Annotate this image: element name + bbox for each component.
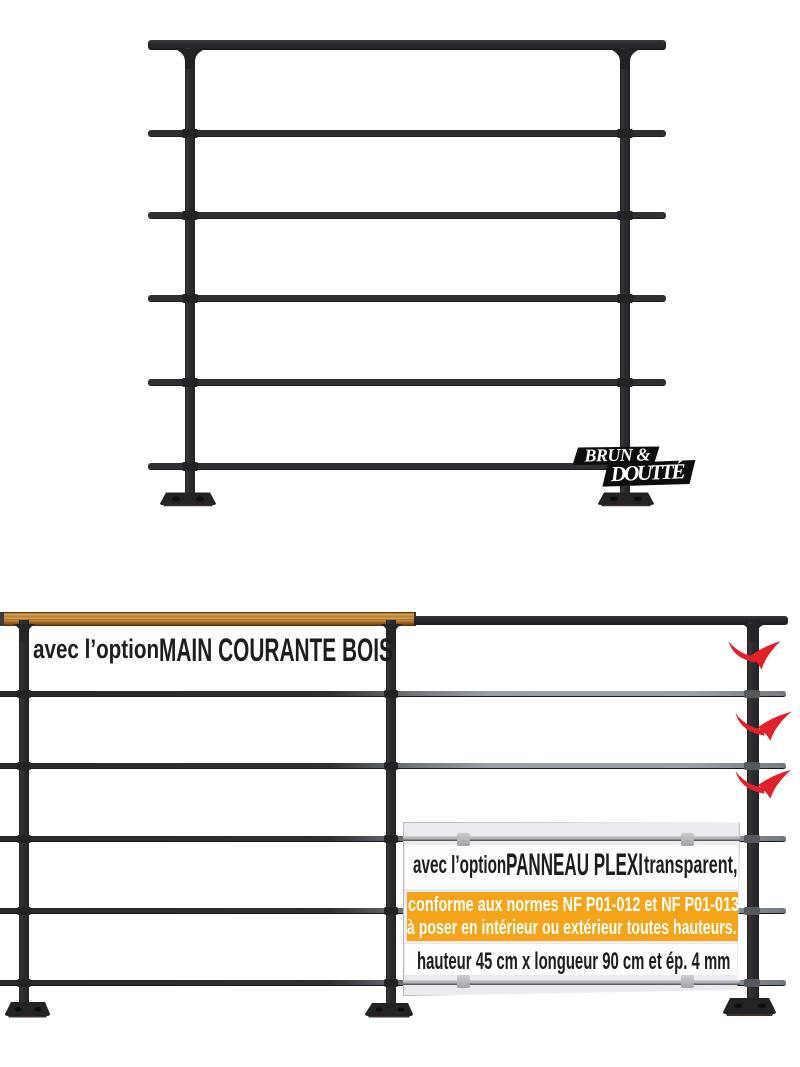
svg-text:DOUTTÉ: DOUTTÉ — [609, 459, 686, 486]
